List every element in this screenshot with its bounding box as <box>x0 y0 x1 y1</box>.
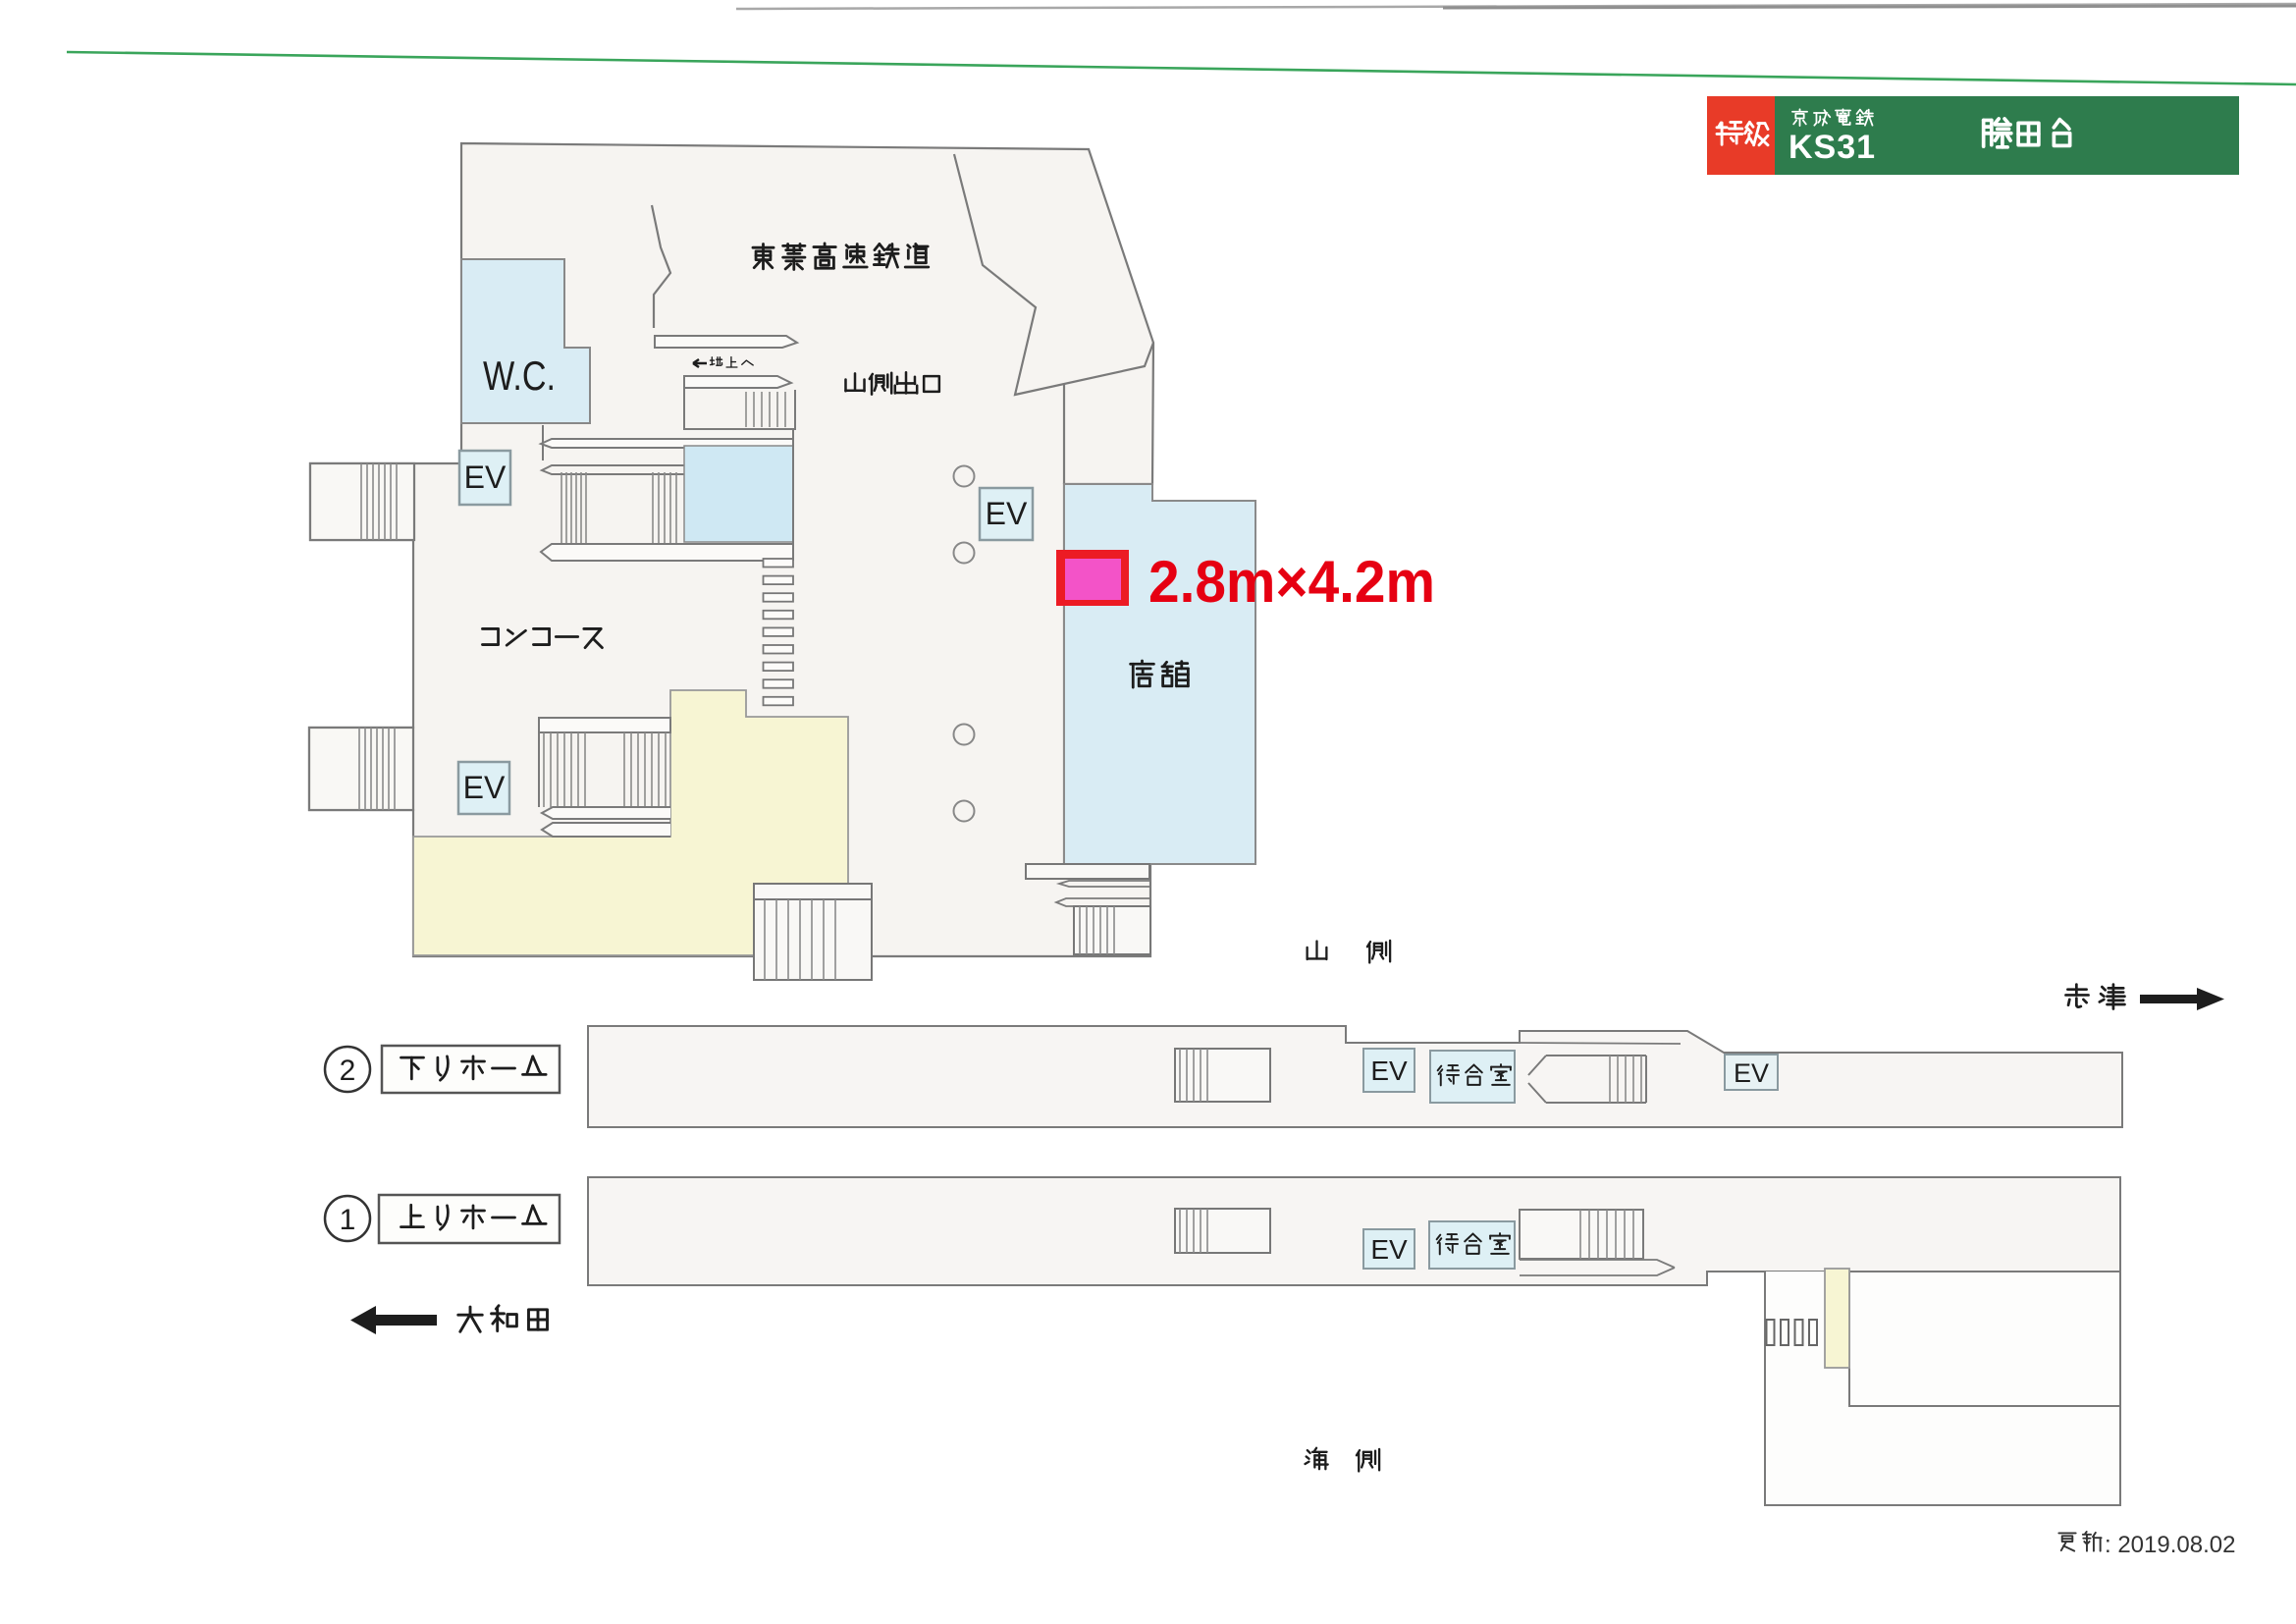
svg-text:EV: EV <box>1370 1056 1408 1086</box>
svg-text:W.C.: W.C. <box>483 352 556 399</box>
svg-text:1: 1 <box>340 1204 356 1236</box>
svg-text:EV: EV <box>1370 1234 1408 1265</box>
svg-text:2.8m×4.2m: 2.8m×4.2m <box>1148 549 1435 615</box>
svg-text:EV: EV <box>1734 1058 1769 1088</box>
svg-text:KS31: KS31 <box>1789 129 1876 166</box>
svg-text:: 2019.08.02: : 2019.08.02 <box>2105 1532 2235 1558</box>
svg-text:2: 2 <box>340 1055 356 1087</box>
svg-text:EV: EV <box>464 460 507 495</box>
svg-text:EV: EV <box>986 496 1028 531</box>
svg-text:EV: EV <box>463 770 506 805</box>
